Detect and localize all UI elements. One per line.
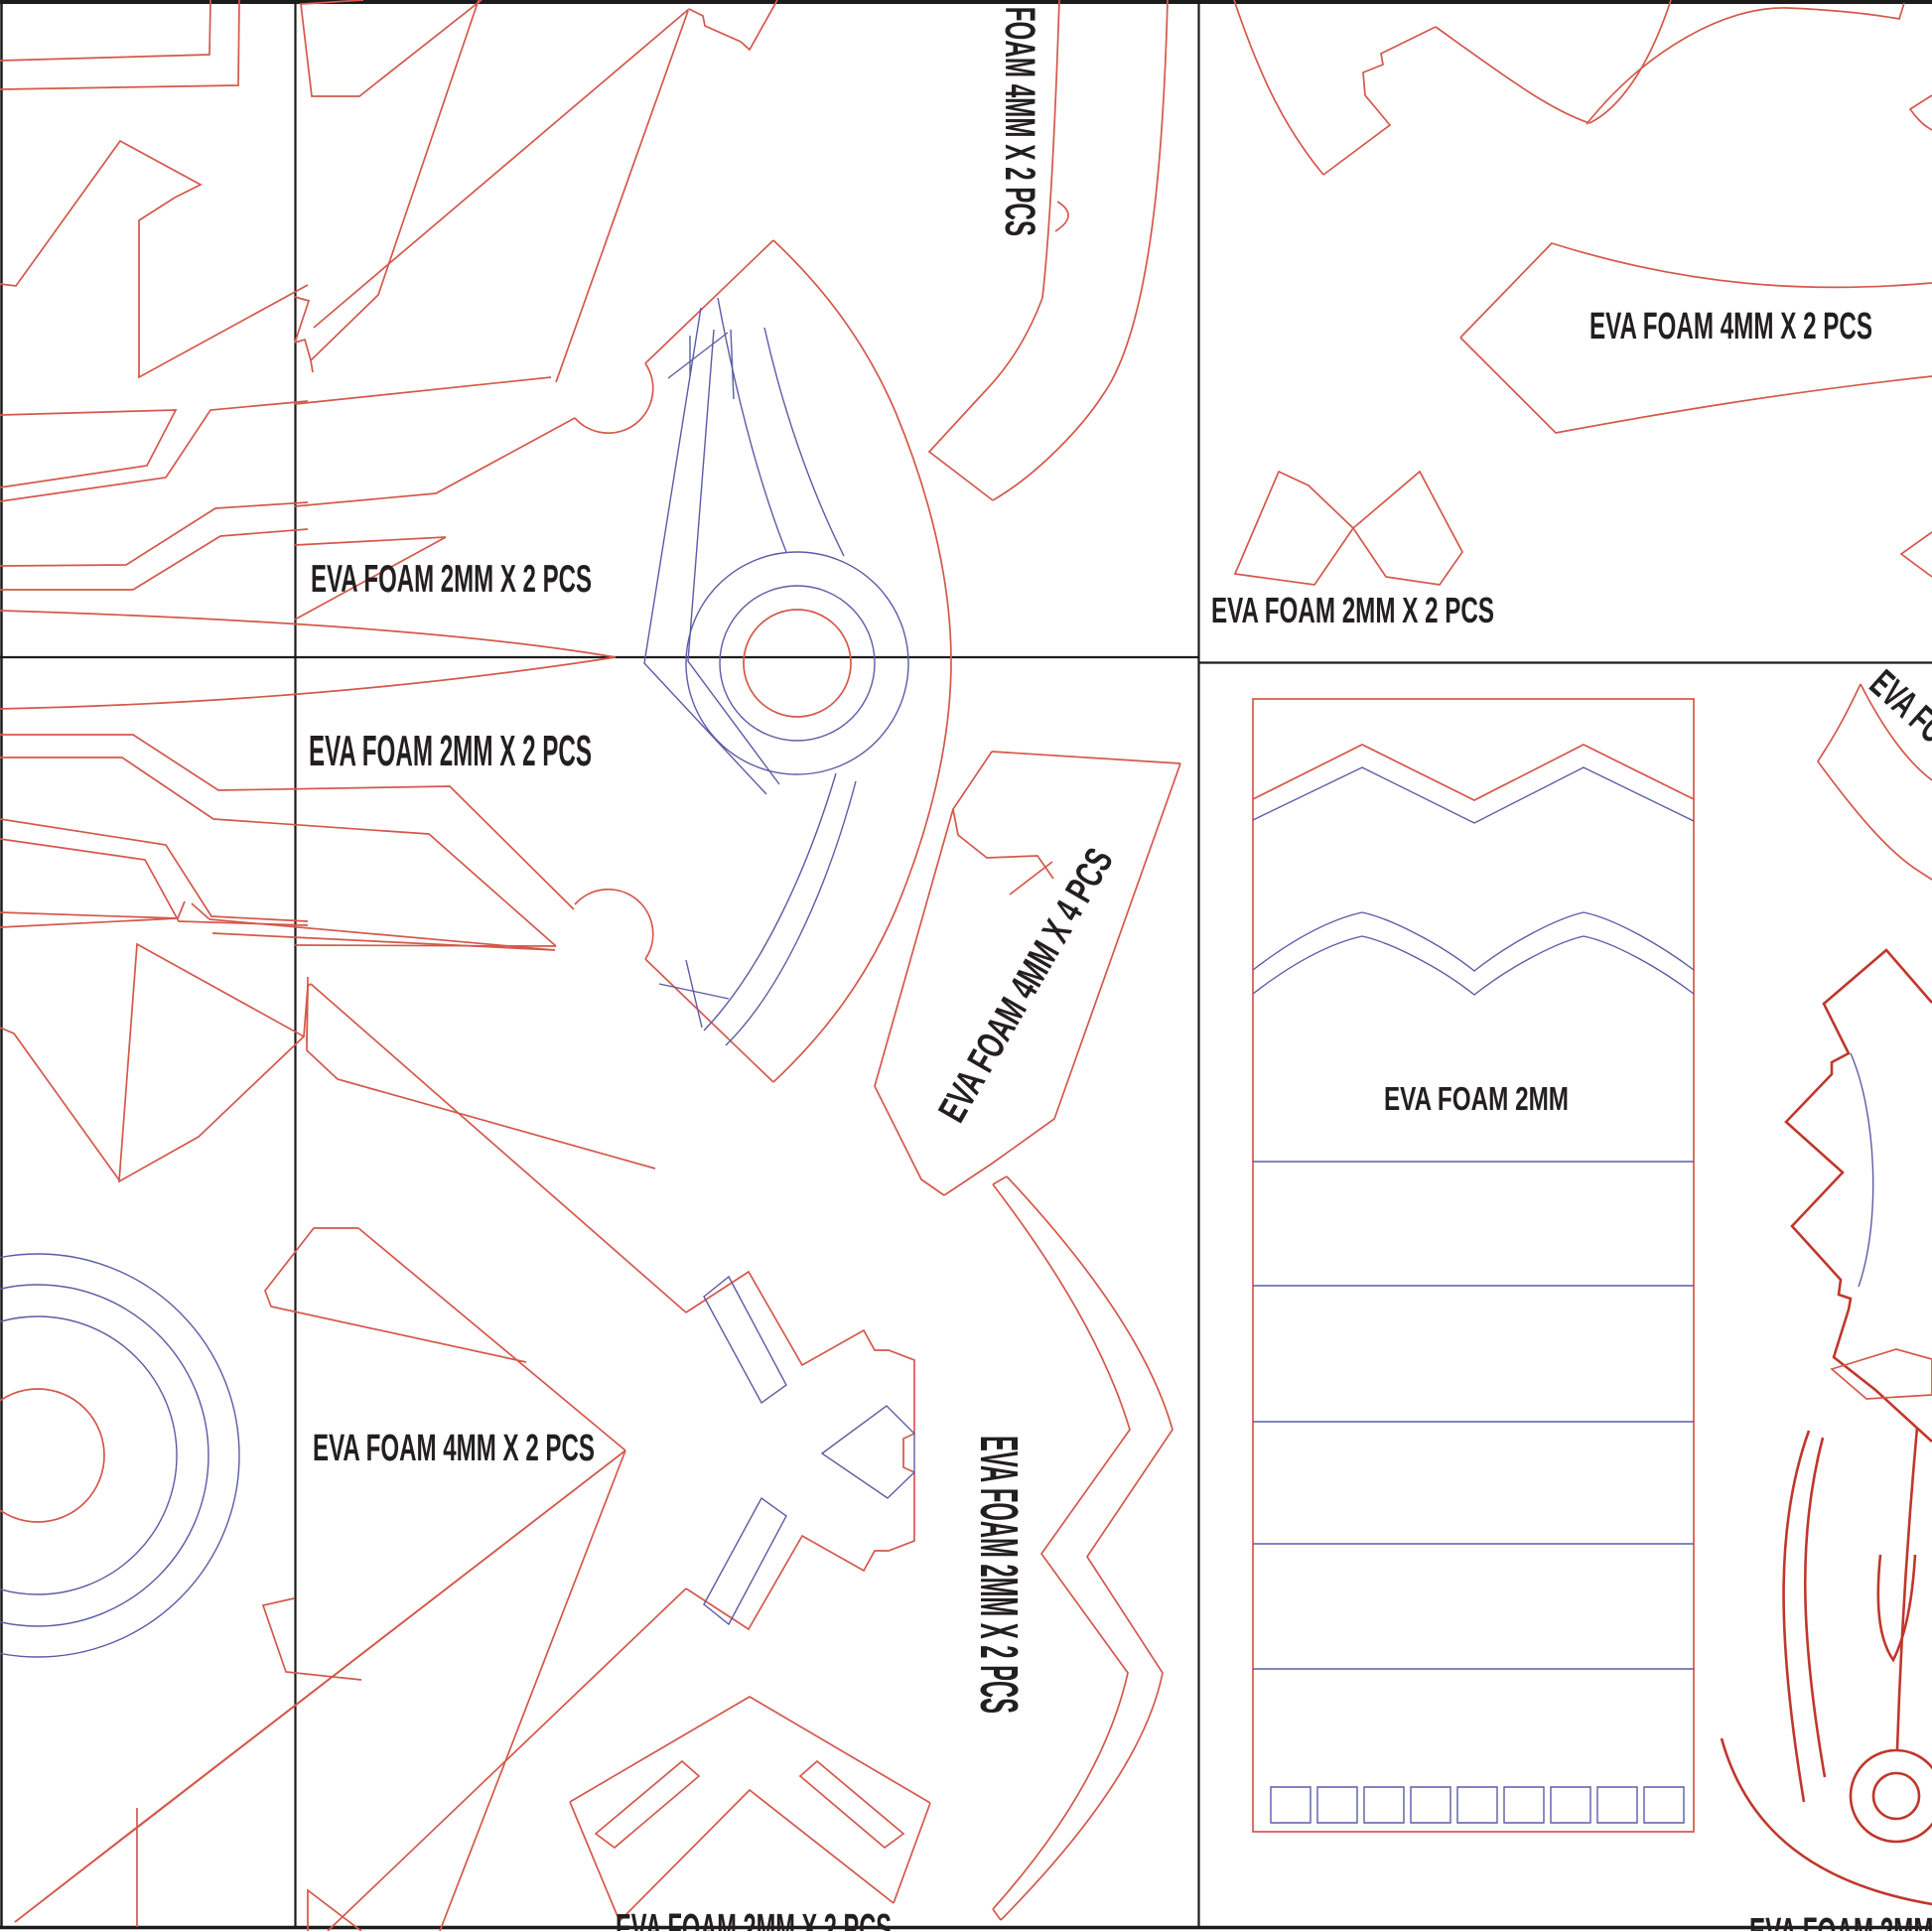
svg-text:EVA FOAM 2MM X 2 PCS: EVA FOAM 2MM X 2 PCS	[1211, 590, 1494, 630]
svg-text:EVA FOAM 2MM X 2 PCS: EVA FOAM 2MM X 2 PCS	[311, 558, 592, 601]
svg-text:EVA FOAM 2MM X 2 PCS: EVA FOAM 2MM X 2 PCS	[969, 1436, 1029, 1714]
svg-text:EVA FOAM 4MM X 2 PCS: EVA FOAM 4MM X 2 PCS	[1589, 306, 1872, 347]
svg-text:EVA FOAM 4MM X 2 PCS: EVA FOAM 4MM X 2 PCS	[313, 1428, 595, 1469]
svg-text:EVA FOAM 2MM X 2 PCS: EVA FOAM 2MM X 2 PCS	[309, 727, 592, 775]
svg-text:EVA FOAM 2MM X 2 PCS: EVA FOAM 2MM X 2 PCS	[1749, 1909, 1932, 1931]
svg-text:EVA FOAM 4MM X 2 PCS: EVA FOAM 4MM X 2 PCS	[996, 0, 1043, 236]
svg-text:EVA FOAM 2MM: EVA FOAM 2MM	[1384, 1080, 1569, 1117]
svg-text:EVA FOAM 2MM X 2 PCS: EVA FOAM 2MM X 2 PCS	[616, 1905, 892, 1931]
